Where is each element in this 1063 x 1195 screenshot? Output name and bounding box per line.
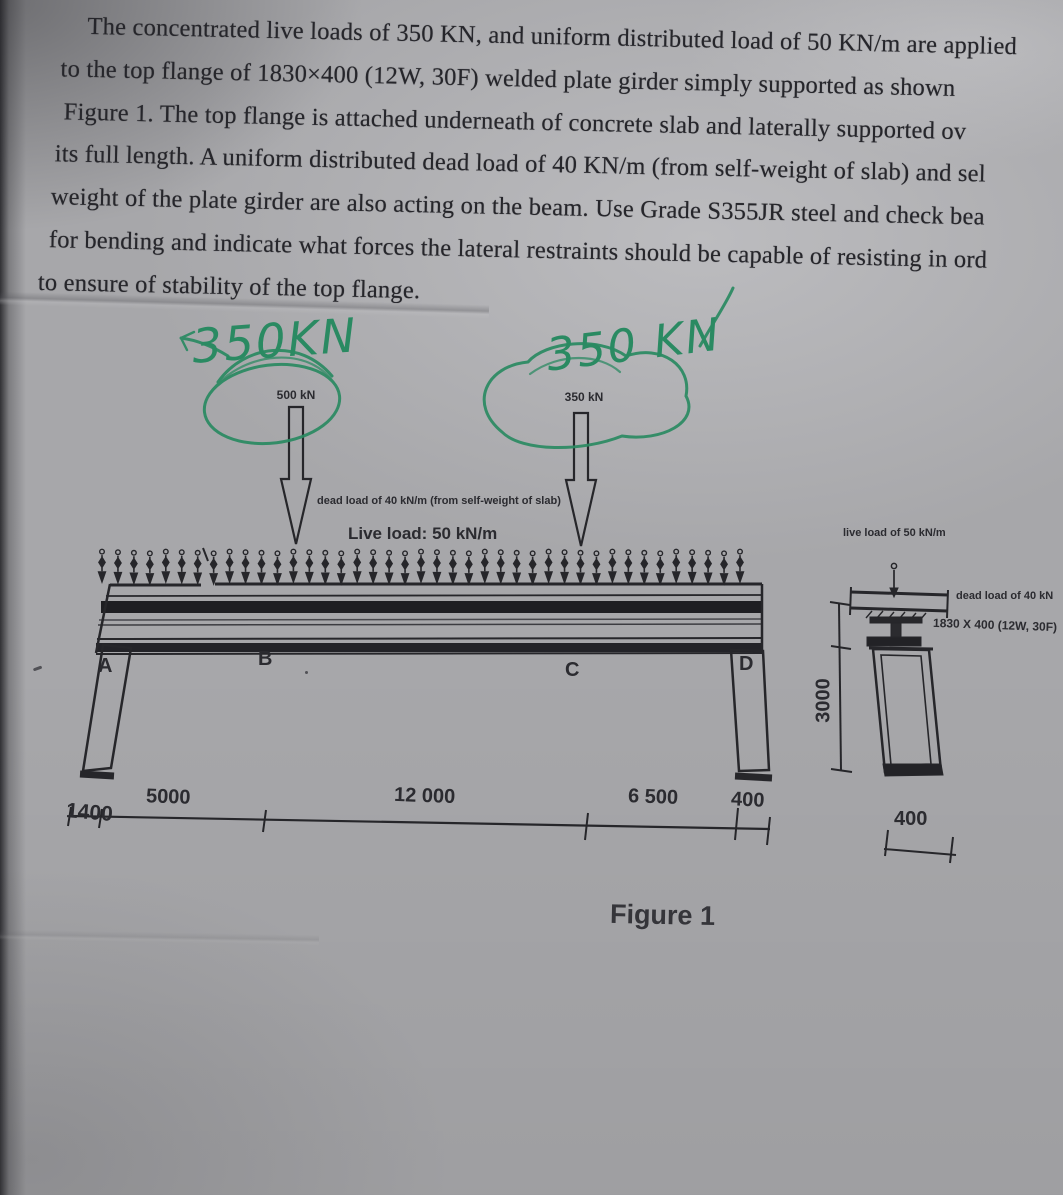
- section-slab: [850, 587, 948, 618]
- girder-beam: [96, 584, 762, 654]
- live-load-label: Live load: 50 kN/m: [348, 524, 497, 544]
- handwritten-left-load: 350KN: [190, 308, 359, 374]
- support-label-b: B: [258, 648, 272, 671]
- figure-1-linework: [0, 0, 1063, 1195]
- left-point-load-arrow: [281, 407, 311, 544]
- support-label-a: A: [98, 655, 112, 678]
- section-width-dimension-label: 400: [894, 808, 927, 831]
- dimension-right-overhang: 400: [730, 788, 765, 813]
- dead-load-note: dead load of 40 kN/m (from self-weight o…: [317, 495, 561, 507]
- left-point-load-label: 500 kN: [268, 388, 324, 402]
- section-girder: [866, 611, 926, 646]
- support-label-d: D: [739, 653, 753, 676]
- section-height-dimension-label: 3000: [813, 666, 836, 736]
- section-width-dimension: [884, 830, 956, 863]
- dimension-left-overhang: 1400: [65, 799, 114, 827]
- dimension-span-ab: 5000: [146, 785, 191, 810]
- photographed-problem-sheet: The concentrated live loads of 350 KN, a…: [0, 0, 1063, 1195]
- figure-caption: Figure 1: [610, 899, 716, 932]
- right-point-load-label: 350 kN: [556, 390, 612, 404]
- stray-mark: [203, 548, 208, 561]
- dimension-span-bc: 12 000: [394, 784, 456, 809]
- paper-speck: [305, 671, 308, 674]
- distributed-load-arrows: [99, 549, 744, 583]
- section-live-load-label: live load of 50 kN/m: [843, 527, 946, 539]
- right-point-load-arrow: [566, 413, 596, 546]
- dimension-span-cd: 6 500: [628, 785, 679, 810]
- support-label-c: C: [565, 659, 579, 682]
- span-dimension-line: [68, 807, 770, 845]
- section-column: [869, 648, 943, 776]
- section-dead-load-label: dead load of 40 kN: [956, 590, 1053, 602]
